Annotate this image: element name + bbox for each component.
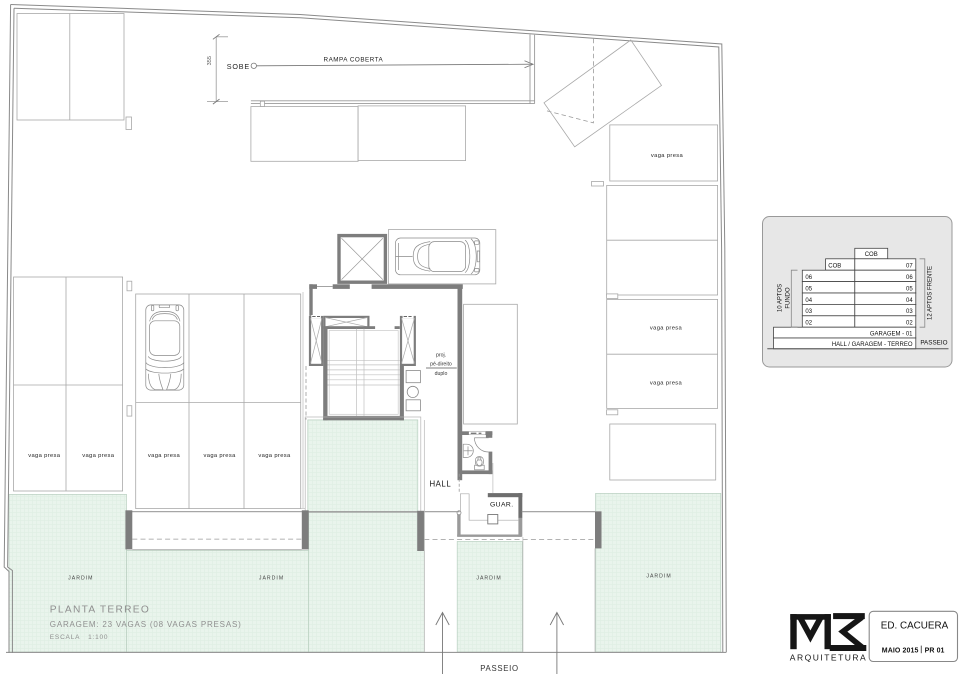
svg-text:06: 06 bbox=[906, 275, 913, 281]
svg-text:ED. CACUERA: ED. CACUERA bbox=[881, 621, 949, 632]
svg-text:JARDIM: JARDIM bbox=[646, 574, 671, 580]
svg-text:GUAR.: GUAR. bbox=[490, 501, 514, 508]
svg-text:07: 07 bbox=[906, 264, 913, 270]
svg-text:04: 04 bbox=[906, 298, 913, 304]
svg-text:02: 02 bbox=[805, 321, 812, 327]
svg-text:vaga presa: vaga presa bbox=[28, 453, 61, 459]
svg-text:SOBE: SOBE bbox=[227, 62, 250, 71]
svg-text:vaga presa: vaga presa bbox=[148, 453, 181, 459]
svg-text:vaga presa: vaga presa bbox=[204, 453, 237, 459]
svg-text:HALL: HALL bbox=[430, 479, 452, 488]
svg-text:03: 03 bbox=[906, 309, 913, 315]
svg-text:HALL / GARAGEM - TERREO: HALL / GARAGEM - TERREO bbox=[832, 342, 913, 348]
svg-text:JARDIM: JARDIM bbox=[68, 576, 93, 582]
svg-text:vaga presa: vaga presa bbox=[258, 453, 291, 459]
svg-text:vaga presa: vaga presa bbox=[651, 153, 684, 159]
svg-text:GARAGEM: 23 VAGAS (08 VAGAS PR: GARAGEM: 23 VAGAS (08 VAGAS PRESAS) bbox=[50, 620, 242, 629]
svg-text:pé-direito: pé-direito bbox=[430, 362, 452, 368]
svg-text:03: 03 bbox=[805, 309, 812, 315]
svg-text:10 APTOS: 10 APTOS bbox=[778, 284, 784, 312]
svg-text:COB: COB bbox=[865, 252, 878, 258]
svg-text:vaga presa: vaga presa bbox=[650, 326, 683, 332]
svg-text:JARDIM: JARDIM bbox=[259, 576, 284, 582]
svg-text:COB: COB bbox=[828, 264, 841, 270]
svg-text:vaga presa: vaga presa bbox=[82, 453, 115, 459]
svg-text:12 APTOS FRENTE: 12 APTOS FRENTE bbox=[928, 266, 934, 320]
svg-text:MAIO 2015: MAIO 2015 bbox=[882, 647, 919, 654]
svg-text:proj.: proj. bbox=[436, 352, 446, 358]
svg-text:duplo: duplo bbox=[435, 371, 448, 377]
svg-text:JARDIM: JARDIM bbox=[476, 576, 501, 582]
svg-text:GARAGEM - 01: GARAGEM - 01 bbox=[870, 331, 913, 337]
svg-text:PASSEIO: PASSEIO bbox=[480, 664, 519, 673]
svg-text:05: 05 bbox=[906, 286, 913, 292]
svg-text:PR 01: PR 01 bbox=[925, 647, 945, 654]
svg-text:06: 06 bbox=[805, 275, 812, 281]
svg-text:FUNDO: FUNDO bbox=[785, 287, 791, 309]
svg-text:RAMPA COBERTA: RAMPA COBERTA bbox=[324, 57, 384, 64]
svg-text:vaga presa: vaga presa bbox=[650, 381, 683, 387]
svg-text:ESCALA 1:100: ESCALA 1:100 bbox=[50, 634, 109, 641]
svg-text:04: 04 bbox=[805, 298, 812, 304]
svg-text:PLANTA TERREO: PLANTA TERREO bbox=[50, 604, 150, 615]
svg-text:ARQUITETURA: ARQUITETURA bbox=[790, 653, 867, 663]
svg-text:02: 02 bbox=[906, 321, 913, 327]
svg-text:355: 355 bbox=[207, 56, 213, 65]
svg-text:05: 05 bbox=[805, 286, 812, 292]
svg-text:PASSEIO: PASSEIO bbox=[920, 340, 947, 347]
